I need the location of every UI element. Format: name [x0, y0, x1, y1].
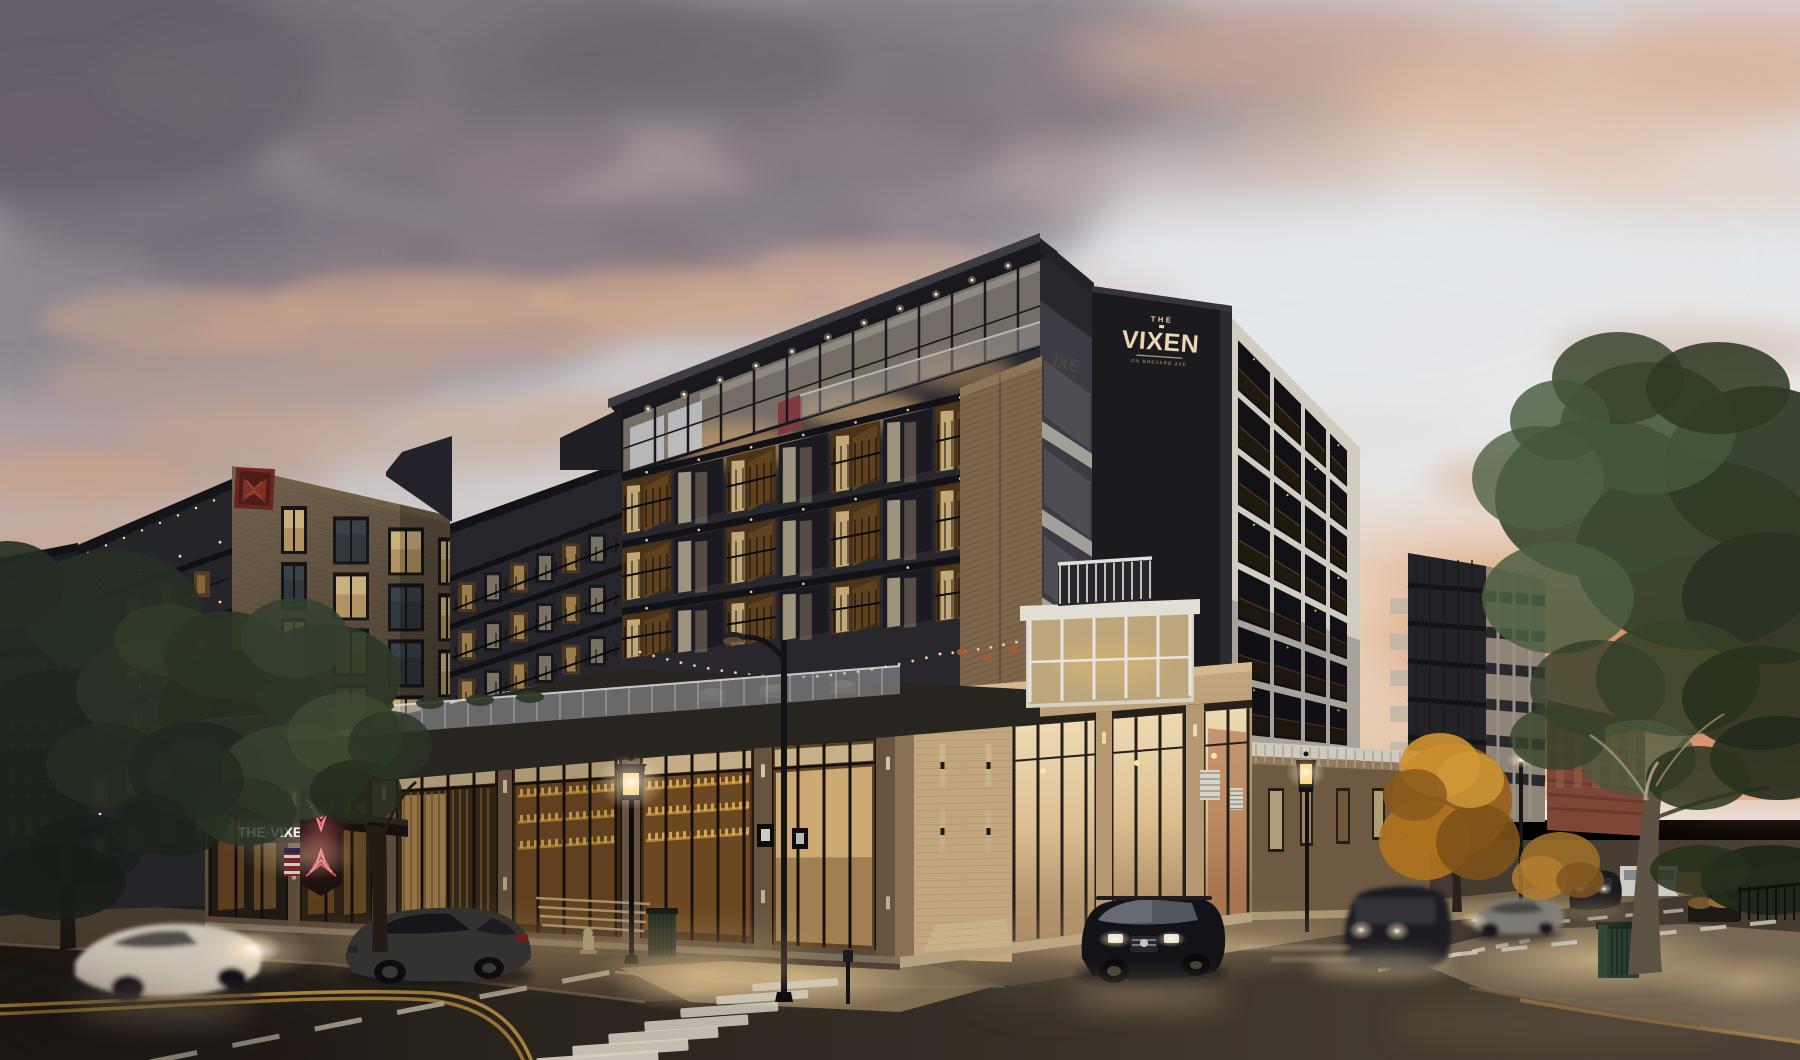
svg-text:THE: THE [1151, 314, 1174, 325]
svg-text:VIXEN: VIXEN [1121, 325, 1200, 358]
